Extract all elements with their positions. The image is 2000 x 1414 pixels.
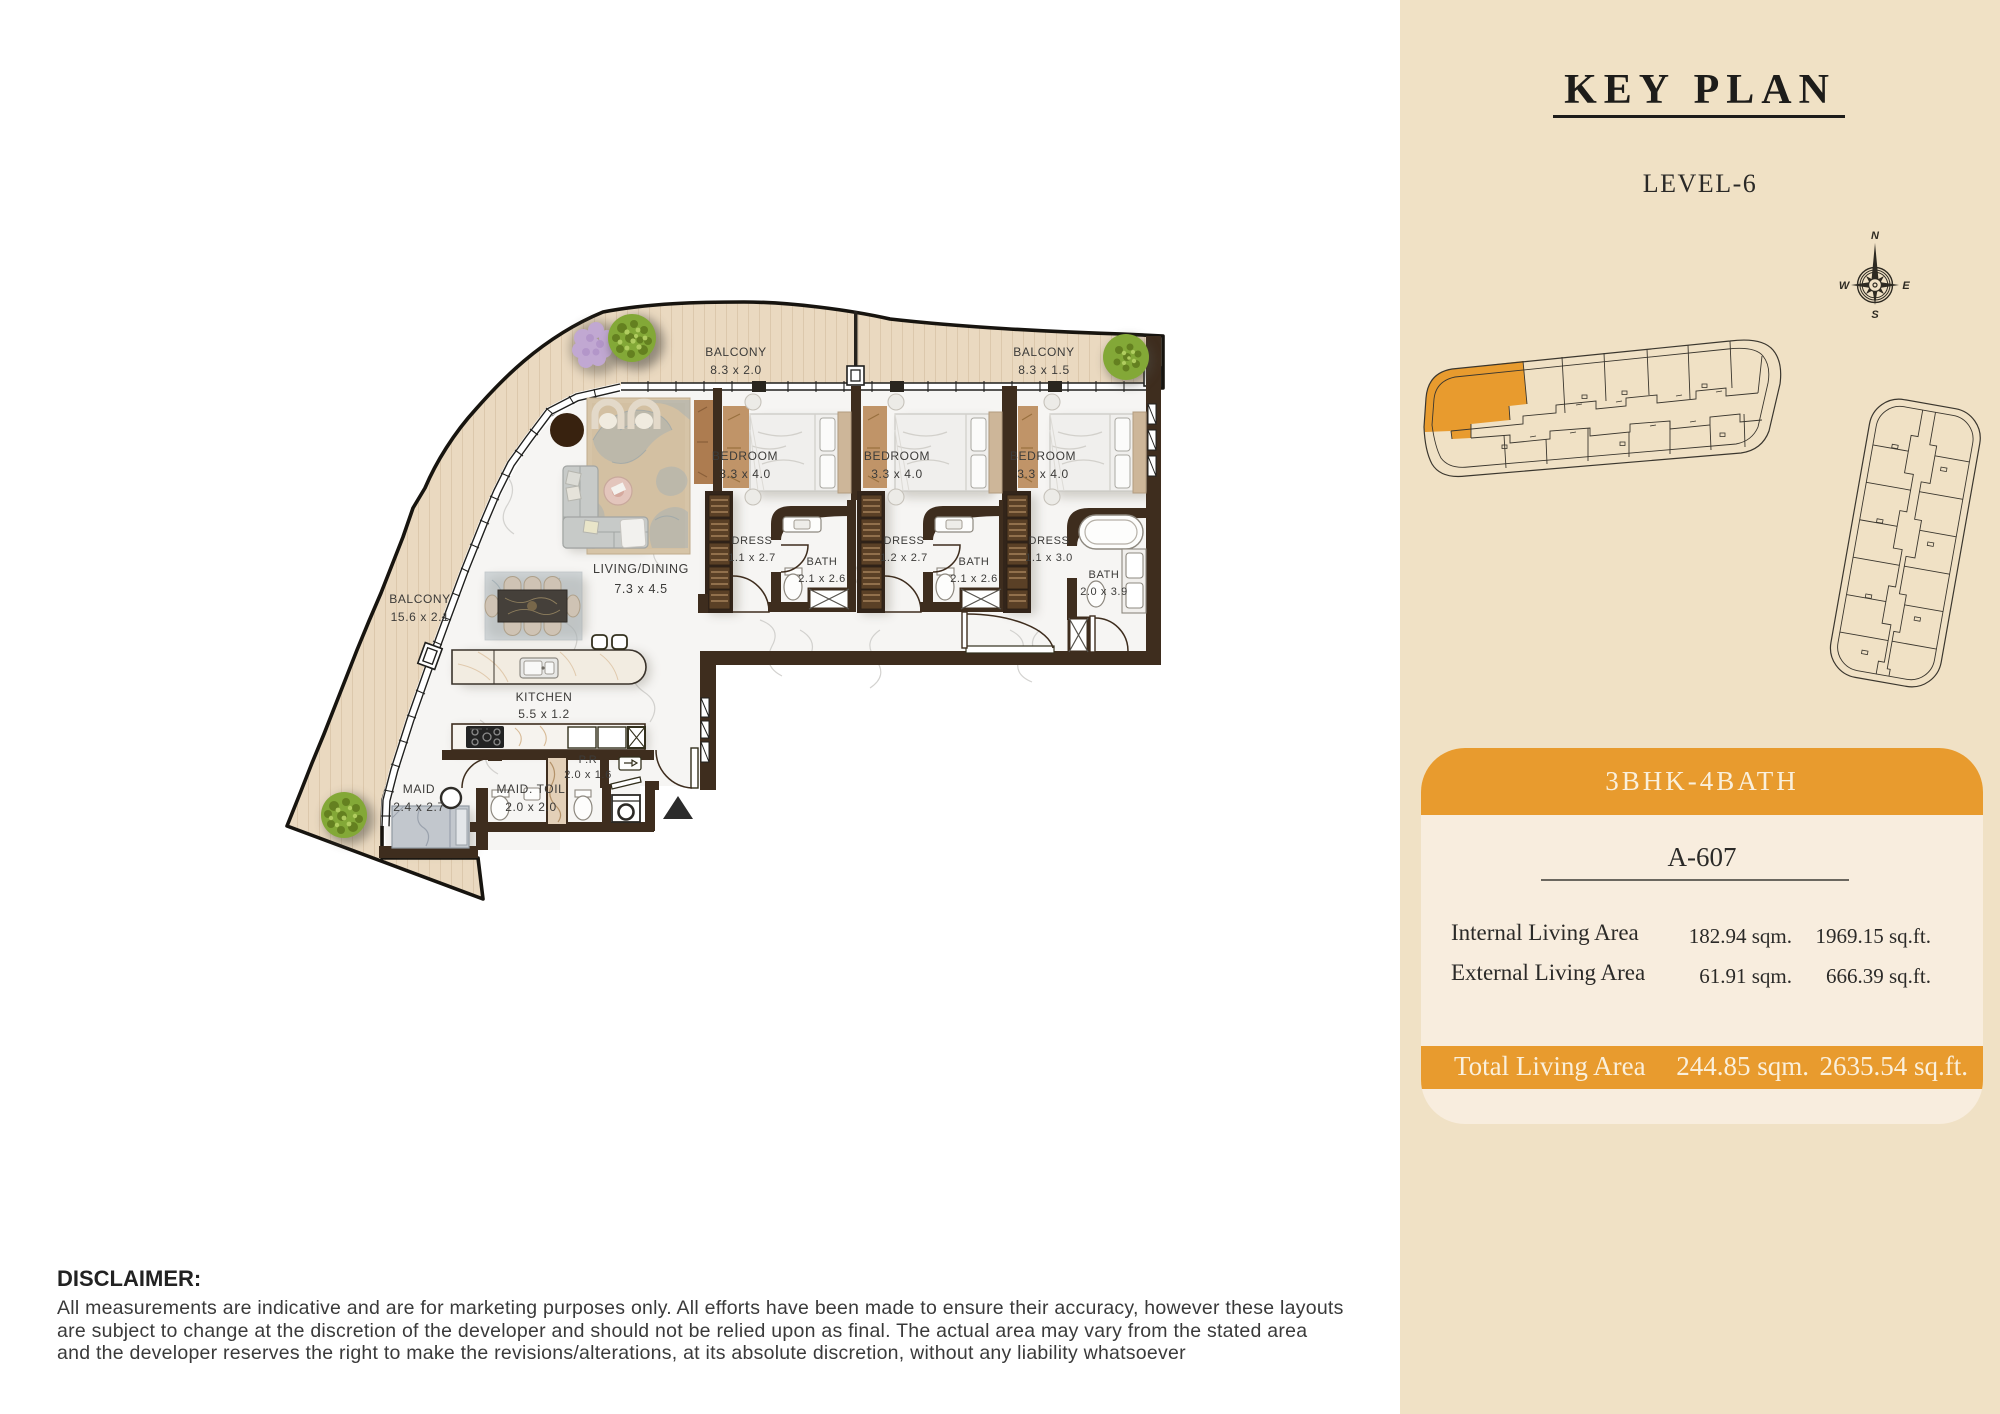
svg-text:E: E bbox=[1902, 280, 1910, 292]
svg-text:8.3 x 1.5: 8.3 x 1.5 bbox=[1018, 363, 1069, 377]
svg-text:S: S bbox=[1871, 309, 1879, 321]
svg-text:P.R: P.R bbox=[579, 754, 598, 766]
svg-text:7.3 x 4.5: 7.3 x 4.5 bbox=[614, 582, 667, 596]
svg-text:1.2 x 2.7: 1.2 x 2.7 bbox=[880, 552, 928, 564]
svg-text:3.3 x 4.0: 3.3 x 4.0 bbox=[719, 467, 770, 481]
svg-text:2.0 x 3.9: 2.0 x 3.9 bbox=[1080, 586, 1128, 598]
svg-text:2.0 x 2.0: 2.0 x 2.0 bbox=[505, 800, 556, 814]
svg-text:2.0 x 1.6: 2.0 x 1.6 bbox=[564, 769, 612, 781]
svg-text:MAID: MAID bbox=[403, 782, 435, 796]
svg-text:N: N bbox=[1871, 230, 1880, 242]
svg-text:8.3 x 2.0: 8.3 x 2.0 bbox=[710, 363, 761, 377]
svg-text:KITCHEN: KITCHEN bbox=[516, 690, 573, 704]
svg-text:2.1 x 2.6: 2.1 x 2.6 bbox=[950, 573, 998, 585]
svg-text:BATH: BATH bbox=[1089, 569, 1120, 581]
svg-text:DRESS: DRESS bbox=[732, 535, 773, 547]
svg-text:DRESS: DRESS bbox=[884, 535, 925, 547]
svg-text:MAID. TOIL: MAID. TOIL bbox=[497, 782, 566, 796]
svg-text:BALCONY: BALCONY bbox=[705, 345, 767, 359]
svg-text:BEDROOM: BEDROOM bbox=[712, 449, 778, 463]
svg-text:5.5 x 1.2: 5.5 x 1.2 bbox=[518, 707, 569, 721]
svg-text:BATH: BATH bbox=[959, 556, 990, 568]
svg-text:W: W bbox=[1839, 280, 1851, 292]
svg-text:3.3 x 4.0: 3.3 x 4.0 bbox=[1017, 467, 1068, 481]
svg-text:BALCONY: BALCONY bbox=[1013, 345, 1075, 359]
svg-text:BEDROOM: BEDROOM bbox=[864, 449, 930, 463]
svg-text:3.3 x 4.0: 3.3 x 4.0 bbox=[871, 467, 922, 481]
svg-text:BEDROOM: BEDROOM bbox=[1010, 449, 1076, 463]
svg-text:DRESS: DRESS bbox=[1029, 535, 1070, 547]
svg-text:1.1 x 2.7: 1.1 x 2.7 bbox=[728, 552, 776, 564]
svg-text:1.1 x 3.0: 1.1 x 3.0 bbox=[1025, 552, 1073, 564]
svg-text:15.6 x 2.1: 15.6 x 2.1 bbox=[391, 610, 450, 624]
svg-text:2.1 x 2.6: 2.1 x 2.6 bbox=[798, 573, 846, 585]
svg-text:BATH: BATH bbox=[807, 556, 838, 568]
svg-text:2.4 x 2.7: 2.4 x 2.7 bbox=[393, 800, 444, 814]
svg-text:LIVING/DINING: LIVING/DINING bbox=[593, 562, 689, 576]
svg-text:BALCONY: BALCONY bbox=[389, 592, 451, 606]
